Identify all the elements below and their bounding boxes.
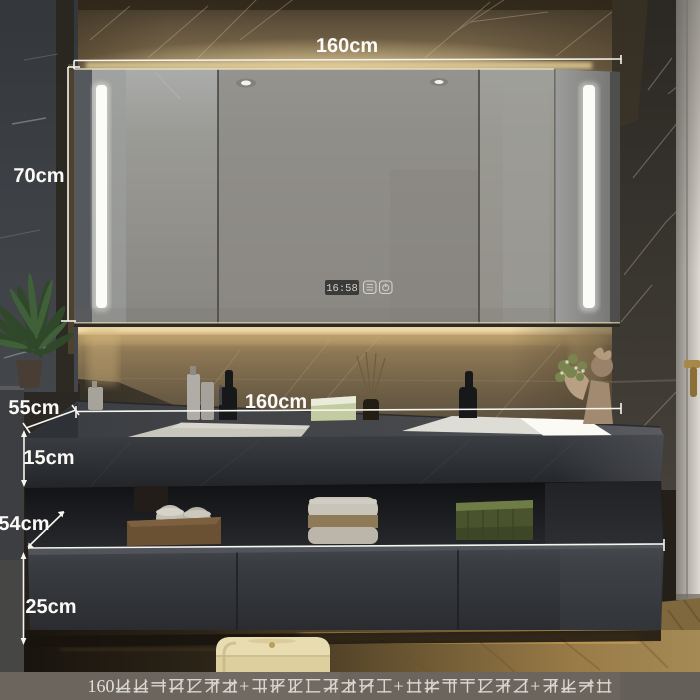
svg-text:160cm: 160cm	[316, 35, 378, 57]
svg-text:25cm: 25cm	[25, 596, 76, 618]
svg-text:160cm: 160cm	[245, 391, 307, 413]
svg-text:6: 6	[97, 676, 106, 696]
svg-text:55cm: 55cm	[8, 397, 59, 419]
svg-text:70cm: 70cm	[13, 165, 64, 187]
svg-text:+: +	[530, 676, 540, 696]
svg-text:54cm: 54cm	[0, 513, 50, 535]
svg-text:0: 0	[106, 676, 115, 696]
svg-text:1: 1	[88, 676, 97, 696]
svg-text:15cm: 15cm	[23, 447, 74, 469]
svg-text:+: +	[394, 676, 404, 696]
svg-text:16:58: 16:58	[326, 283, 358, 295]
svg-text:+: +	[239, 676, 249, 696]
